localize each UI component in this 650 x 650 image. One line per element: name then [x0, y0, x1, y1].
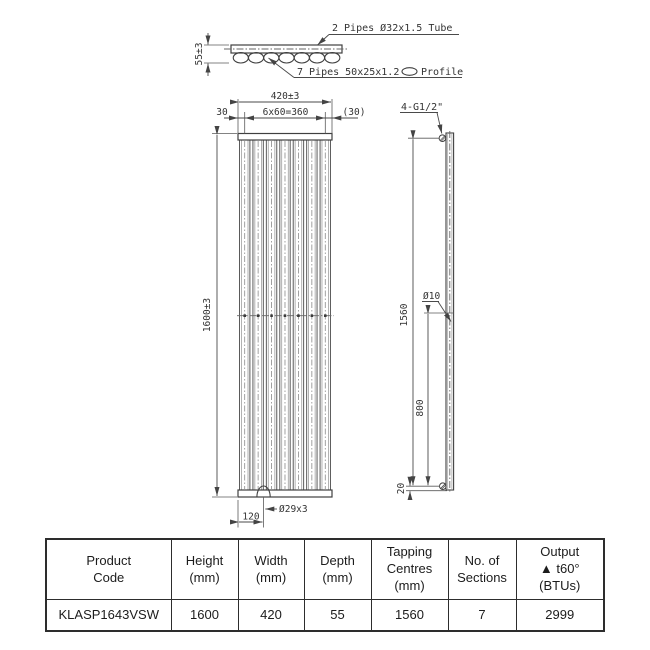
- value-product-code: KLASP1643VSW: [46, 600, 171, 632]
- profile-callout-label-left: 7 Pipes 50x25x1.2: [297, 67, 399, 78]
- bottom-header-bar: [238, 490, 332, 497]
- bracket-dim-label: 800: [415, 399, 426, 416]
- value-output: 2999: [516, 600, 604, 632]
- depth-dim-label: 55±3: [194, 43, 205, 66]
- height-dim-label: 1600±3: [202, 298, 213, 332]
- value-sections: 7: [448, 600, 516, 632]
- side-hole-dim-label: Ø10: [423, 291, 440, 302]
- tapping-callout-label: 4-G1/2": [401, 102, 443, 113]
- tube-callout-label: 2 Pipes Ø32x1.5 Tube: [332, 22, 452, 34]
- tapping-centres-dim-label: 1560: [399, 303, 410, 326]
- header-product-code: Product Code: [46, 539, 171, 600]
- oval-profile: [233, 53, 248, 63]
- hole-offset-dim-label: 120: [242, 512, 259, 523]
- oval-profile: [279, 53, 294, 63]
- top-header-bar: [238, 134, 332, 141]
- header-sections: No. of Sections: [448, 539, 516, 600]
- oval-profile: [325, 53, 340, 63]
- width-dim-label: 420±3: [271, 91, 300, 102]
- bracket-dot: [257, 314, 260, 317]
- bracket-dot: [297, 314, 300, 317]
- bracket-dot: [311, 314, 314, 317]
- oval-profile: [294, 53, 309, 63]
- header-tapping-centres: Tapping Centres (mm): [371, 539, 448, 600]
- header-width: Width (mm): [238, 539, 304, 600]
- technical-drawing-page: 55±3 2 Pipes Ø32x1.5 Tube 7 Pipes 50x25x…: [0, 0, 650, 650]
- oval-profile: [248, 53, 263, 63]
- oval-profile: [310, 53, 325, 63]
- bottom-tapping-fitting: [440, 483, 447, 490]
- spacing-dim-label: 6x60=360: [263, 107, 309, 118]
- oval-profile: [264, 53, 279, 63]
- header-depth: Depth (mm): [304, 539, 371, 600]
- bracket-dot: [270, 314, 273, 317]
- bracket-dot: [243, 314, 246, 317]
- spec-table-data-row: KLASP1643VSW 1600 420 55 1560 7 2999: [46, 600, 604, 632]
- top-view: 55±3 2 Pipes Ø32x1.5 Tube 7 Pipes 50x25x…: [194, 22, 463, 78]
- profile-shape-icon: [402, 68, 417, 76]
- front-view: 420±3 30 6x60=360 (30) 1600±3 Ø29x3 120: [202, 91, 365, 528]
- value-depth: 55: [304, 600, 371, 632]
- value-height: 1600: [171, 600, 238, 632]
- side-view: 4-G1/2" 1560 Ø10 800 20: [396, 102, 454, 499]
- left-margin-dim-label: 30: [216, 107, 228, 118]
- bracket-dot: [324, 314, 327, 317]
- bracket-dot: [284, 314, 287, 317]
- hole-dim-label: Ø29x3: [279, 504, 308, 515]
- top-tapping-fitting: [439, 135, 446, 142]
- oval-profiles: [233, 53, 340, 63]
- right-margin-dim-label: (30): [343, 107, 366, 118]
- header-height: Height (mm): [171, 539, 238, 600]
- bottom-offset-dim-label: 20: [396, 483, 407, 495]
- value-tapping-centres: 1560: [371, 600, 448, 632]
- profile-callout-label-right: Profile: [421, 67, 463, 78]
- spec-table: Product Code Height (mm) Width (mm) Dept…: [45, 538, 605, 632]
- header-output: Output ▲ t60° (BTUs): [516, 539, 604, 600]
- spec-table-header-row: Product Code Height (mm) Width (mm) Dept…: [46, 539, 604, 600]
- value-width: 420: [238, 600, 304, 632]
